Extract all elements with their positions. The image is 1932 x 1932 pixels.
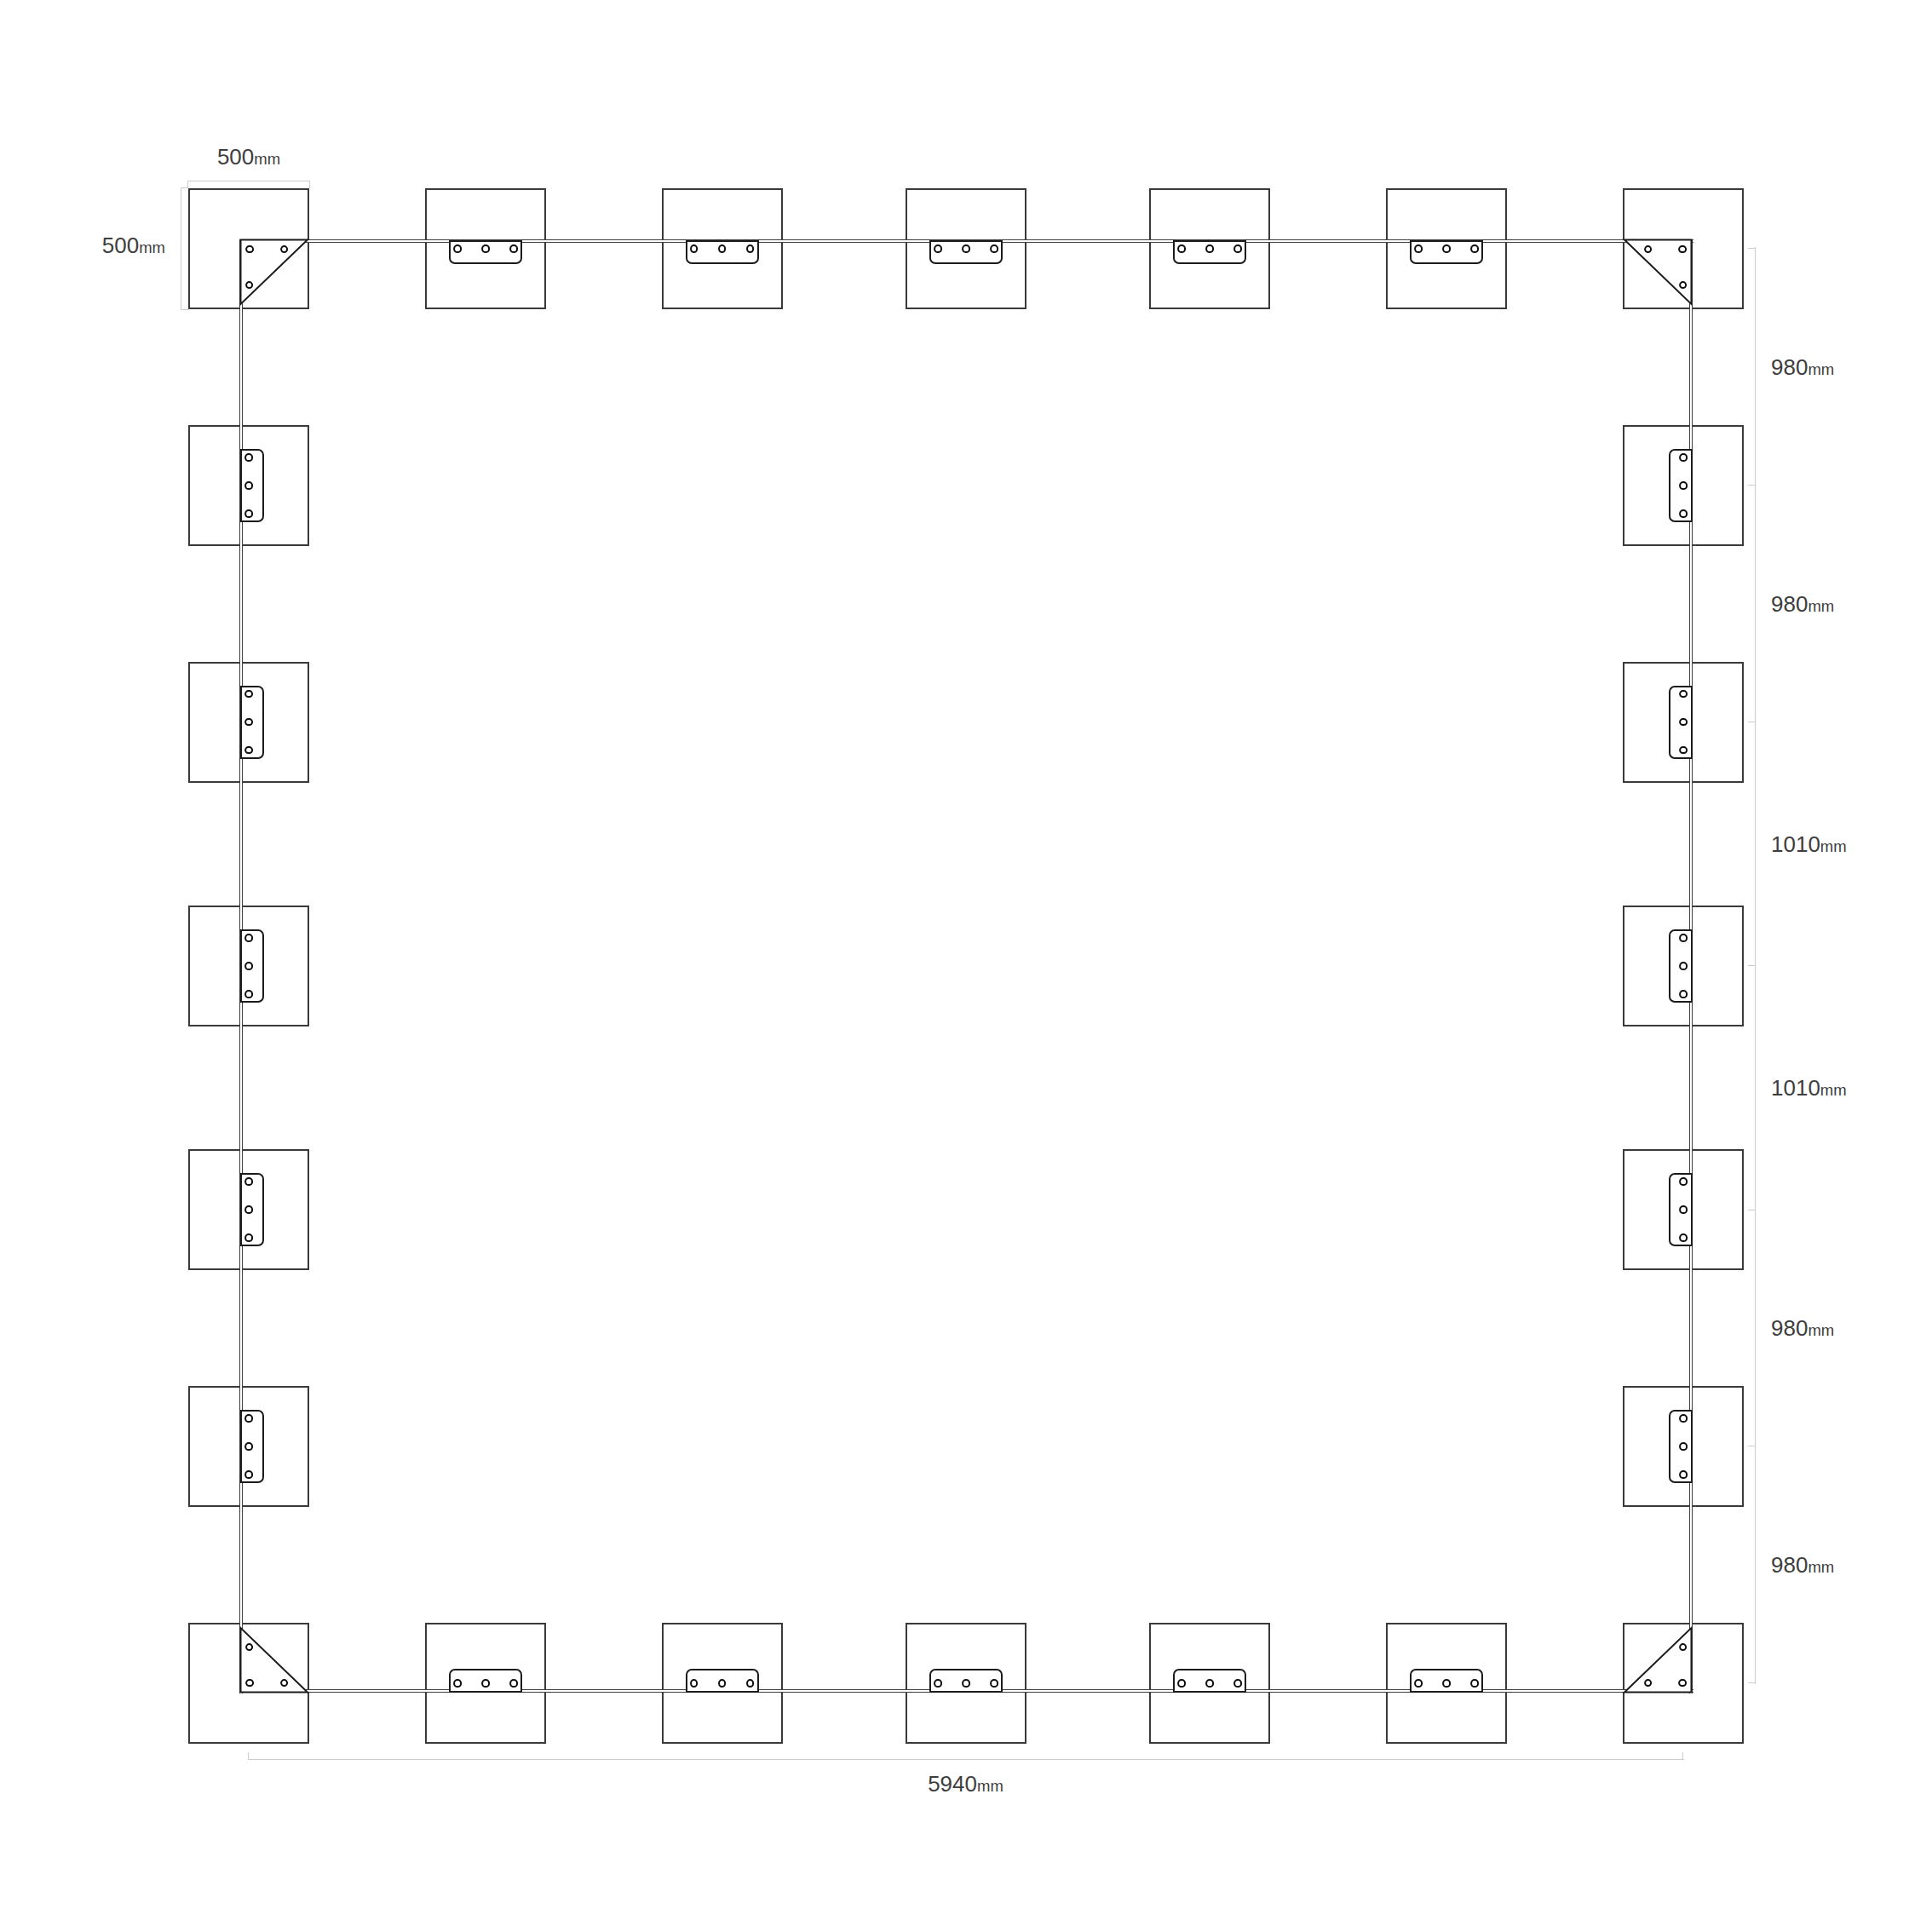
bolt-hole (690, 1679, 699, 1688)
bolt-hole (1679, 1470, 1688, 1479)
dimension-unit: mm (1820, 1081, 1847, 1099)
bolt-hole (962, 244, 970, 253)
bolt-hole (1679, 990, 1688, 998)
dimension-value: 500 (102, 233, 139, 258)
bolt-hole (746, 1679, 755, 1688)
bolt-hole (1679, 1643, 1688, 1652)
dimension-value: 500 (217, 144, 254, 170)
bolt-hole (244, 962, 253, 970)
bolt-hole (934, 1679, 942, 1688)
bolt-hole (1442, 1679, 1451, 1688)
bolt-hole (1679, 1414, 1688, 1423)
bolt-hole (934, 244, 942, 253)
bolt-hole (1679, 718, 1688, 727)
bolt-hole (1679, 1177, 1688, 1186)
dimension-unit: mm (1808, 1558, 1834, 1576)
bolt-hole (1644, 1679, 1653, 1688)
dimension-unit: mm (1820, 837, 1847, 855)
bolt-hole (244, 1442, 253, 1451)
bolt-hole (1205, 1679, 1214, 1688)
bolt-hole (245, 1679, 254, 1688)
bolt-hole (1414, 244, 1423, 253)
bolt-hole (990, 244, 998, 253)
dimension-unit: mm (139, 239, 165, 256)
bolt-hole (244, 481, 253, 490)
dimension-unit: mm (254, 150, 280, 168)
bolt-hole (244, 1177, 253, 1186)
bolt-hole (244, 746, 253, 755)
bolt-hole (1233, 1679, 1242, 1688)
bolt-hole (690, 244, 699, 253)
bolt-hole (1679, 690, 1688, 699)
bolt-hole (245, 1643, 254, 1652)
dimension-label-right-2: 1010mm (1771, 833, 1847, 855)
bolt-hole (1205, 244, 1214, 253)
bolt-hole (962, 1679, 970, 1688)
bolt-hole (481, 244, 490, 253)
dimension-unit: mm (1808, 597, 1834, 615)
bolt-hole (453, 244, 462, 253)
bolt-hole (245, 245, 254, 254)
bolt-hole (1679, 1233, 1688, 1242)
bolt-hole (244, 1233, 253, 1242)
bolt-hole (990, 1679, 998, 1688)
bolt-hole (1679, 1205, 1688, 1214)
bolt-hole (718, 244, 727, 253)
bolt-hole (481, 1679, 490, 1688)
bolt-hole (244, 934, 253, 942)
bolt-hole (1679, 453, 1688, 462)
bolt-hole (244, 509, 253, 518)
bolt-hole (1442, 244, 1451, 253)
bolt-hole (1678, 1679, 1687, 1688)
dimension-label-total-span: 5940mm (928, 1773, 1003, 1795)
bolt-hole (1233, 244, 1242, 253)
bolt-hole (244, 718, 253, 727)
bolt-hole (244, 453, 253, 462)
bolt-hole (244, 1470, 253, 1479)
bolt-hole (1678, 245, 1687, 254)
dimension-value: 980 (1771, 1552, 1808, 1578)
dimension-label-right-3: 1010mm (1771, 1077, 1847, 1099)
bolt-hole (1470, 244, 1479, 253)
dimension-value: 980 (1771, 1315, 1808, 1341)
holes-layer (0, 0, 1932, 1932)
bolt-hole (244, 690, 253, 699)
bolt-hole (509, 1679, 518, 1688)
bolt-hole (244, 1414, 253, 1423)
dimension-label-right-4: 980mm (1771, 1317, 1834, 1339)
bolt-hole (1679, 1442, 1688, 1451)
bolt-hole (1177, 244, 1186, 253)
dimension-label-pad-height: 500mm (46, 234, 165, 256)
dimension-label-right-1: 980mm (1771, 593, 1834, 615)
bolt-hole (1414, 1679, 1423, 1688)
bolt-hole (1679, 509, 1688, 518)
bolt-hole (1644, 245, 1653, 254)
bolt-hole (453, 1679, 462, 1688)
dimension-label-right-0: 980mm (1771, 356, 1834, 378)
foundation-plan-canvas: 500mm 500mm 5940mm 980mm980mm1010mm1010m… (0, 0, 1932, 1932)
dimension-value: 980 (1771, 354, 1808, 380)
bolt-hole (1679, 934, 1688, 942)
bolt-hole (1679, 746, 1688, 755)
dimension-unit: mm (1808, 360, 1834, 378)
dimension-label-pad-width: 500mm (188, 146, 309, 168)
bolt-hole (1177, 1679, 1186, 1688)
bolt-hole (244, 1205, 253, 1214)
dimension-value: 1010 (1771, 1075, 1820, 1101)
bolt-hole (244, 990, 253, 998)
bolt-hole (280, 1679, 289, 1688)
dimension-unit: mm (977, 1777, 1003, 1795)
bolt-hole (1679, 281, 1688, 290)
bolt-hole (1679, 962, 1688, 970)
bolt-hole (245, 281, 254, 290)
bolt-hole (746, 244, 755, 253)
bolt-hole (1470, 1679, 1479, 1688)
dimension-unit: mm (1808, 1321, 1834, 1339)
dimension-value: 1010 (1771, 831, 1820, 857)
dimension-value: 5940 (928, 1771, 977, 1797)
dimension-label-right-5: 980mm (1771, 1554, 1834, 1576)
bolt-hole (509, 244, 518, 253)
bolt-hole (1679, 481, 1688, 490)
dimension-value: 980 (1771, 591, 1808, 617)
bolt-hole (718, 1679, 727, 1688)
bolt-hole (280, 245, 289, 254)
